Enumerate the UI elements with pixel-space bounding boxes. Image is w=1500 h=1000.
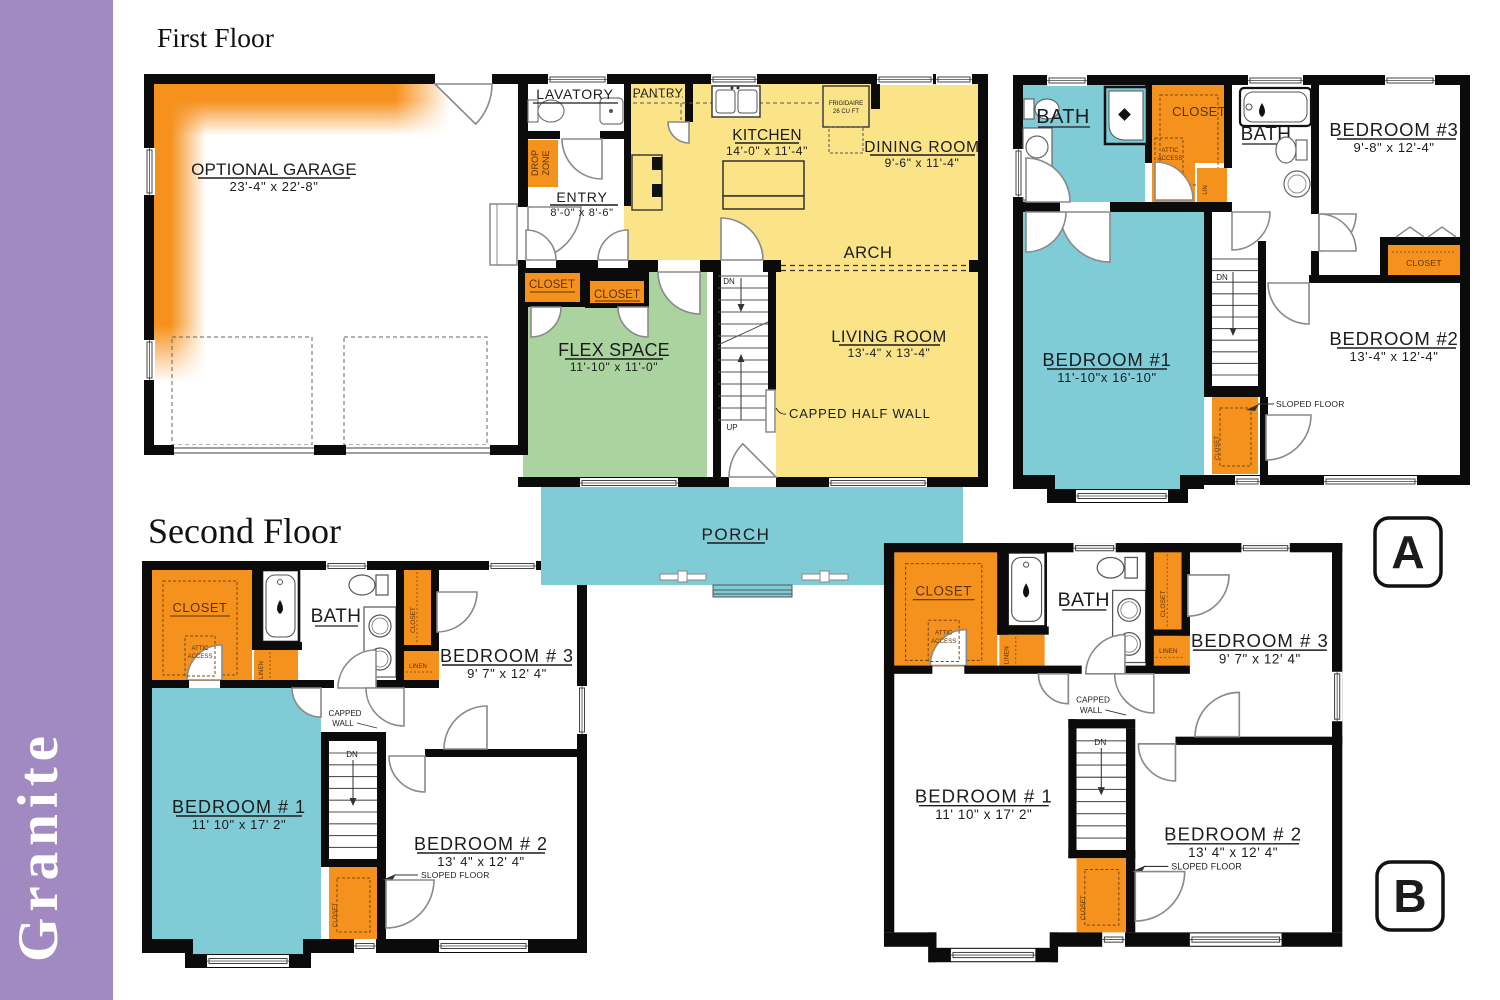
svg-text:ATTIC: ATTIC bbox=[1162, 148, 1180, 154]
svg-text:BEDROOM #3: BEDROOM #3 bbox=[1329, 119, 1458, 140]
svg-text:26 CU FT: 26 CU FT bbox=[833, 109, 859, 115]
svg-text:CLOSET: CLOSET bbox=[594, 289, 640, 301]
svg-text:UP: UP bbox=[726, 423, 737, 432]
svg-text:LIVING ROOM: LIVING ROOM bbox=[831, 328, 947, 346]
svg-text:23'-4" x 22'-8": 23'-4" x 22'-8" bbox=[230, 179, 319, 194]
svg-text:LINEN: LINEN bbox=[259, 661, 265, 679]
svg-text:ACCESS: ACCESS bbox=[1158, 156, 1183, 162]
svg-text:8'-0" x 8'-6": 8'-0" x 8'-6" bbox=[550, 207, 613, 219]
svg-text:BEDROOM # 2: BEDROOM # 2 bbox=[414, 834, 548, 854]
svg-text:CLOSET: CLOSET bbox=[1406, 258, 1442, 268]
svg-text:LIN: LIN bbox=[1203, 185, 1209, 194]
svg-text:CLOSET: CLOSET bbox=[333, 903, 339, 927]
svg-text:ACCESS: ACCESS bbox=[188, 654, 213, 660]
svg-text:DN: DN bbox=[723, 277, 735, 286]
svg-text:13'-4" x 12'-4": 13'-4" x 12'-4" bbox=[1350, 349, 1439, 364]
svg-text:ENTRY: ENTRY bbox=[556, 189, 607, 205]
svg-text:FRIGIDAIRE: FRIGIDAIRE bbox=[829, 101, 863, 107]
svg-text:SLOPED FLOOR: SLOPED FLOOR bbox=[421, 870, 490, 880]
svg-text:BEDROOM #1: BEDROOM #1 bbox=[1042, 349, 1171, 370]
svg-text:DN: DN bbox=[1216, 273, 1228, 282]
svg-text:PANTRY: PANTRY bbox=[633, 86, 684, 100]
svg-text:LAVATORY: LAVATORY bbox=[536, 86, 613, 102]
svg-text:Second Floor: Second Floor bbox=[148, 511, 341, 551]
svg-text:DINING ROOM: DINING ROOM bbox=[864, 139, 980, 156]
svg-text:OPTIONAL GARAGE: OPTIONAL GARAGE bbox=[191, 160, 357, 179]
svg-text:BEDROOM #2: BEDROOM #2 bbox=[1329, 328, 1458, 349]
svg-text:9'-6" x 11'-4": 9'-6" x 11'-4" bbox=[885, 156, 960, 170]
svg-text:WALL: WALL bbox=[332, 719, 354, 728]
svg-text:CLOSET: CLOSET bbox=[529, 279, 575, 291]
svg-text:BATH: BATH bbox=[1036, 106, 1089, 128]
svg-text:PORCH: PORCH bbox=[702, 525, 771, 544]
svg-text:14'-0" x 11'-4": 14'-0" x 11'-4" bbox=[726, 144, 808, 158]
svg-text:ARCH: ARCH bbox=[844, 244, 893, 262]
svg-text:13' 4" x 12' 4": 13' 4" x 12' 4" bbox=[437, 854, 525, 869]
svg-text:13'-4" x 13'-4": 13'-4" x 13'-4" bbox=[848, 346, 931, 360]
svg-text:ATTIC: ATTIC bbox=[192, 646, 210, 652]
svg-text:B: B bbox=[1393, 870, 1426, 922]
svg-text:DN: DN bbox=[346, 750, 358, 759]
svg-text:CLOSET: CLOSET bbox=[1172, 104, 1226, 119]
svg-text:A: A bbox=[1391, 526, 1424, 578]
svg-text:KITCHEN: KITCHEN bbox=[732, 127, 801, 144]
svg-text:ZONE: ZONE bbox=[541, 150, 551, 175]
svg-text:FLEX SPACE: FLEX SPACE bbox=[558, 340, 670, 360]
svg-text:9' 7" x 12' 4": 9' 7" x 12' 4" bbox=[467, 666, 547, 681]
svg-text:BATH: BATH bbox=[311, 606, 362, 627]
svg-text:11'-10"x 16'-10": 11'-10"x 16'-10" bbox=[1057, 370, 1156, 385]
svg-text:11'-10" x 11'-0": 11'-10" x 11'-0" bbox=[570, 360, 658, 374]
svg-text:CLOSET: CLOSET bbox=[1215, 436, 1221, 460]
svg-text:CLOSET: CLOSET bbox=[172, 600, 227, 615]
svg-text:CLOSET: CLOSET bbox=[410, 607, 417, 633]
svg-text:CAPPED: CAPPED bbox=[329, 709, 362, 718]
svg-text:9'-8" x 12'-4": 9'-8" x 12'-4" bbox=[1353, 140, 1434, 155]
svg-text:Granite: Granite bbox=[7, 730, 70, 962]
svg-text:BEDROOM # 1: BEDROOM # 1 bbox=[172, 797, 306, 817]
svg-text:CAPPED HALF WALL: CAPPED HALF WALL bbox=[789, 406, 931, 421]
svg-text:First Floor: First Floor bbox=[157, 22, 274, 53]
svg-text:BEDROOM # 3: BEDROOM # 3 bbox=[440, 646, 574, 666]
svg-text:SLOPED FLOOR: SLOPED FLOOR bbox=[1276, 399, 1345, 409]
svg-text:LINEN: LINEN bbox=[409, 664, 427, 670]
svg-text:DROP: DROP bbox=[530, 150, 540, 176]
svg-text:11' 10" x 17' 2": 11' 10" x 17' 2" bbox=[192, 817, 286, 832]
